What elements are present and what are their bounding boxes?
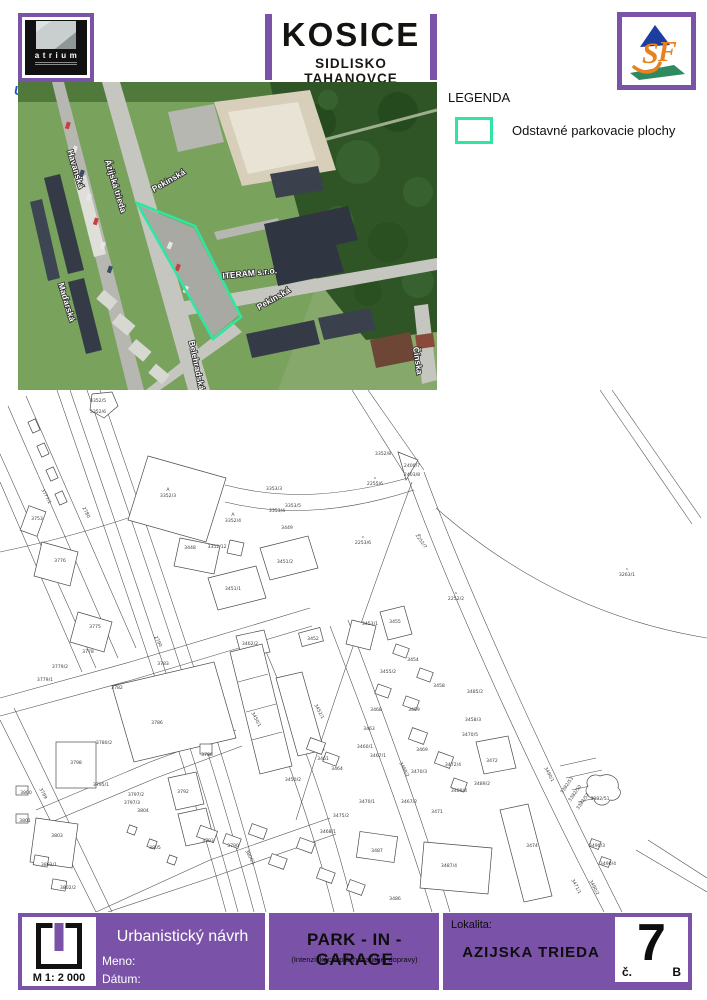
aerial-photo: HavanskáÁzijská triedaPekinskáITERAM s.r…: [18, 82, 437, 390]
parcel-number: 3485/2: [467, 689, 483, 695]
parcel-number: 2403/8: [404, 472, 420, 478]
map-roads: [0, 390, 707, 912]
parcel-number: 2780: [80, 506, 91, 519]
title-bar-right: [430, 14, 437, 80]
parcel-number: 3775: [89, 624, 101, 630]
parcel-number: 3797/3: [124, 800, 140, 806]
parcel-number: 3470/5: [462, 732, 478, 738]
parcel-number: 3793: [202, 838, 214, 844]
parcel-number: 3352/6: [90, 409, 106, 415]
svf-letter-s: S: [642, 37, 659, 70]
parcel-number: 3455/2: [380, 669, 396, 675]
parcel-number: 3805: [149, 845, 161, 851]
parcel-number: 3803: [51, 833, 63, 839]
parcel-number: 3467/1: [370, 753, 386, 759]
parcel-number: 3462/2: [242, 641, 258, 647]
parcel-number: 3795/1: [93, 782, 109, 788]
garage-scale-icon-stripe: [53, 923, 66, 951]
parcel-number: 3353/3: [266, 486, 282, 492]
parcel-number: 3352/5: [90, 398, 106, 404]
legend-label: Odstavné parkovacie plochy: [512, 123, 675, 138]
name-label: Meno:: [102, 954, 135, 968]
parcel-number: 3353/5: [285, 503, 301, 509]
parcel-number: 2400/7: [404, 463, 420, 469]
map-buildings: [16, 392, 620, 902]
parcel-number: 3490/3: [589, 843, 605, 849]
parcel-number: 3471/1: [569, 878, 582, 895]
parcel-number: 3489/4: [451, 788, 467, 794]
parcel-number: 3779/2: [52, 664, 68, 670]
project-title: PARK - IN - GARAGE: [274, 930, 435, 970]
svf-logo-icon: S F: [622, 17, 691, 85]
parcel-number: 3451/2: [277, 559, 293, 565]
parcel-number: 3797/2: [128, 792, 144, 798]
parcel-number: 3458: [433, 683, 445, 689]
parcel-marker: ∧: [374, 476, 377, 480]
parcel-number: 3453/1: [362, 621, 378, 627]
parcel-number: 3464: [331, 766, 343, 772]
parcel-number: 3468: [370, 707, 382, 713]
parcel-number: 3489/2: [474, 781, 490, 787]
parcel-number: 3779/1: [37, 677, 53, 683]
plan-sheet: atrium UzemnePlany.sk KOSICE SIDLISKO TA…: [0, 0, 707, 1000]
parcel-number: 3451/1: [225, 586, 241, 592]
parcel-number: 3450/2: [285, 777, 301, 783]
aerial-photo-canvas: HavanskáÁzijská triedaPekinskáITERAM s.r…: [18, 82, 437, 390]
parcel-number: 3776: [54, 558, 66, 564]
legend-title: LEGENDA: [448, 90, 510, 105]
svf-letter-f: F: [657, 37, 677, 68]
parcel-number: 3352/8: [375, 451, 391, 457]
parcel-number: 3487/4: [441, 863, 457, 869]
parcel-number: 3804: [137, 808, 149, 814]
parcel-number: 3448: [184, 545, 196, 551]
parcel-number: 3474: [526, 843, 538, 849]
atrium-logo-icon: [35, 20, 77, 50]
locality-label: Lokalita:: [451, 919, 492, 931]
parcel-number: 3463: [363, 726, 375, 732]
parcel-number: 3487: [371, 848, 383, 854]
parcel-number: 3753: [31, 516, 43, 522]
parcel-marker: ∧: [626, 567, 629, 571]
parcel-number: 3801: [19, 818, 31, 824]
parcel-number: 2255/6: [367, 481, 383, 487]
parcel-number: 3470/1: [359, 799, 375, 805]
project-subtitle: (Intenzifikácia plôch statickej dopravy): [272, 955, 437, 964]
legend-item: Odstavné parkovacie plochy: [455, 117, 675, 144]
parcel-number: 3798: [70, 760, 82, 766]
parcel-marker: A: [231, 512, 235, 518]
atrium-logo-smallprint2: [35, 64, 77, 65]
parcel-number: 3461: [317, 756, 329, 762]
parcel-number: 3470/3: [411, 769, 427, 775]
parcel-number: 3469: [416, 747, 428, 753]
locality-value: AZIJSKA TRIEDA: [447, 944, 615, 961]
parcel-number: 2790: [152, 635, 163, 648]
parcel-number: 2252/2: [448, 596, 464, 602]
parcel-number: 3452: [307, 636, 319, 642]
parcel-labels: 3352/53352/63352/3A3352/4A3353/33353/533…: [19, 398, 635, 902]
parcel-number: 3777/1: [39, 488, 52, 505]
parcel-number: 3472: [486, 758, 498, 764]
parcel-number: 3802/1: [41, 862, 57, 868]
parcel-number: 3792: [177, 789, 189, 795]
sheet-number: 7: [615, 913, 688, 973]
parcel-number: 3786: [151, 720, 163, 726]
map-scale: M 1: 2 000: [22, 972, 96, 984]
parcel-number: 3490/4: [600, 861, 616, 867]
parcel-number: 3455: [389, 619, 401, 625]
garage-scale-icon: [36, 923, 82, 969]
parcel-number: 3471: [431, 809, 443, 815]
parcel-number: 3382/51: [590, 796, 609, 802]
parcel-number: 3263/1: [619, 572, 635, 578]
page-title: KOSICE: [272, 16, 430, 54]
parcel-number: 3472/4: [445, 762, 461, 768]
parcel-number: 3800: [20, 790, 32, 796]
parcel-number: 3449: [281, 525, 293, 531]
sheet-number-box: 7 č. B: [615, 917, 688, 982]
parcel-number: 3475/2: [333, 813, 349, 819]
parcel-number: 3788: [201, 752, 213, 758]
title-bar-left: [265, 14, 272, 80]
parcel-number: 3806/1: [243, 849, 256, 866]
legend-swatch-parking: [455, 117, 493, 144]
parcel-marker: ∧: [362, 535, 365, 539]
cadastral-map-canvas: 3352/53352/63352/3A3352/4A3353/33353/533…: [0, 390, 707, 912]
atrium-logo-text: atrium: [35, 51, 80, 60]
date-label: Dátum:: [102, 972, 141, 986]
footer-title-bar: M 1: 2 000 Urbanistický návrh Meno: Dátu…: [18, 913, 692, 990]
footer-divider-1: [265, 913, 269, 990]
parcel-number: 3454: [407, 657, 419, 663]
cadastral-map: 3352/53352/63352/3A3352/4A3353/33353/533…: [0, 390, 707, 912]
parcel-number: 3353/4: [269, 508, 285, 514]
atrium-logo-inner: atrium: [25, 20, 87, 75]
parcel-number: 2253/6: [355, 540, 371, 546]
parcel-number: 3468/1: [320, 829, 336, 835]
footer-divider-2: [439, 913, 443, 990]
sheet-number-prefix: č.: [622, 965, 632, 979]
atrium-logo: atrium: [18, 13, 94, 82]
parcel-number: 3490/1: [542, 766, 555, 783]
parcel-number: 3352/4: [225, 518, 241, 524]
parcel-number: 3783: [157, 661, 169, 667]
project-type: Urbanistický návrh: [100, 928, 265, 946]
parcel-number: 3459: [408, 707, 420, 713]
svf-logo: S F: [617, 12, 696, 90]
parcel-number: 3486: [389, 896, 401, 902]
parcel-number: 3468/2: [397, 761, 410, 778]
parcel-number: 3467/2: [401, 799, 417, 805]
parcel-number: 3802/2: [60, 885, 76, 891]
parcel-number: 3780/2: [96, 740, 112, 746]
parcel-number: 3352/3: [160, 493, 176, 499]
sheet-number-suffix: B: [672, 965, 681, 979]
parcel-number: 3458/3: [465, 717, 481, 723]
parcel-number: 3778: [82, 649, 94, 655]
parcel-number: 3490/2: [587, 879, 600, 896]
title-block: KOSICE SIDLISKO TAHANOVCE: [265, 14, 437, 80]
parcel-number: 3352/12: [207, 544, 226, 550]
parcel-number: 3790: [227, 843, 239, 849]
atrium-logo-smallprint: [35, 62, 77, 63]
parcel-marker: ∧: [455, 591, 458, 595]
parcel-marker: ∧: [419, 533, 422, 537]
parcel-number: 3460/1: [357, 744, 373, 750]
scale-box: M 1: 2 000: [22, 917, 96, 986]
parcel-number: 3782: [111, 685, 123, 691]
